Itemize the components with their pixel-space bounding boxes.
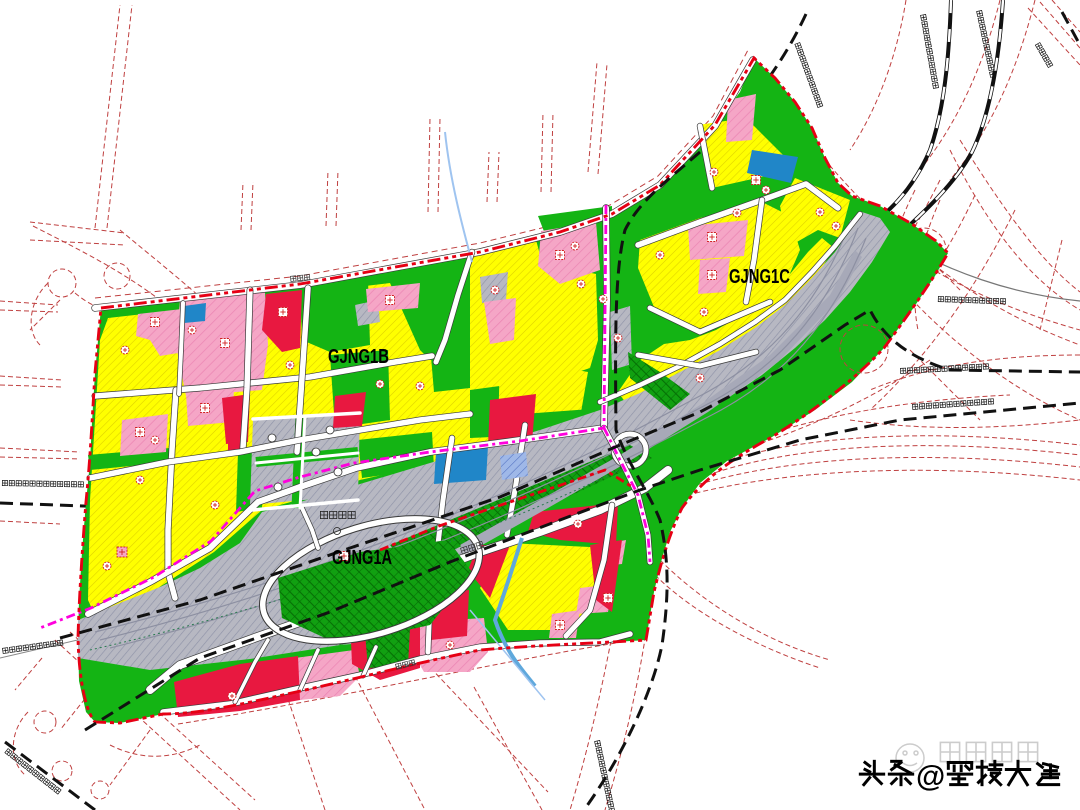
svg-text:@: @ xyxy=(916,760,945,793)
svg-text:GJNG1A: GJNG1A xyxy=(332,547,392,569)
svg-text:GJNG1C: GJNG1C xyxy=(729,266,790,288)
svg-text:GJNG1B: GJNG1B xyxy=(328,346,389,368)
